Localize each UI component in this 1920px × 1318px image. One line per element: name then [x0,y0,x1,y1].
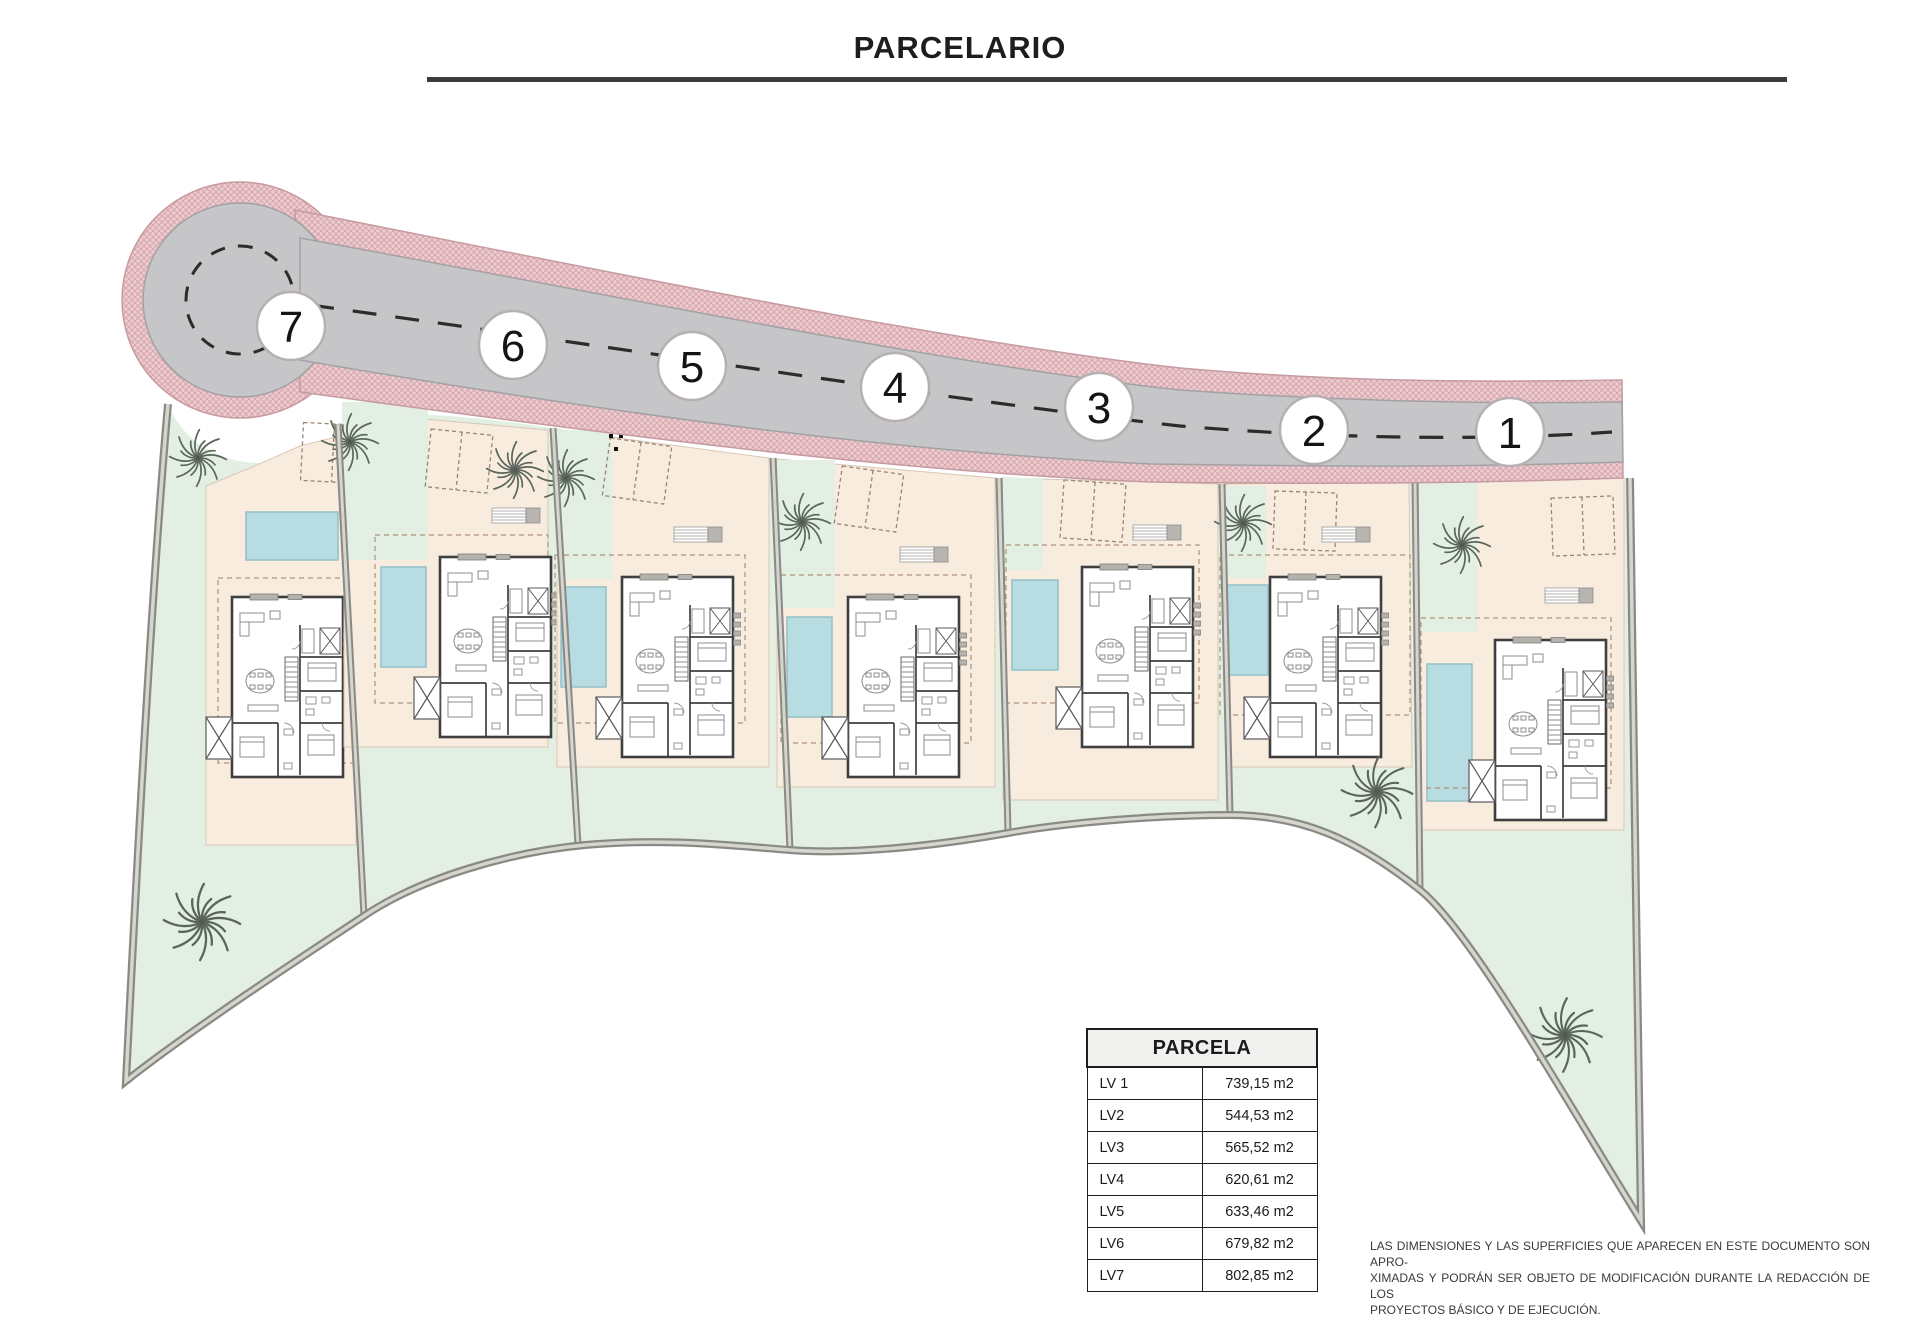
disclaimer-line: XIMADAS Y PODRÁN SER OBJETO DE MODIFICAC… [1370,1270,1870,1302]
disclaimer-line: PROYECTOS BÁSICO Y DE EJECUCIÓN. [1370,1302,1870,1318]
parcel-3 [1003,478,1218,800]
parcel-area: 620,61 m2 [1202,1164,1317,1196]
parcel-label: LV7 [1087,1260,1202,1292]
parcel-label: LV 1 [1087,1067,1202,1100]
parcel-marker-label: 5 [680,343,704,392]
garden-steps [674,527,722,542]
parcela-table: PARCELA LV 1739,15 m2LV2544,53 m2LV3565,… [1086,1028,1318,1292]
table-header: PARCELA [1087,1029,1317,1067]
parcel-marker-label: 4 [883,364,907,413]
table-row: LV4620,61 m2 [1087,1164,1317,1196]
pool [1224,585,1268,675]
parcel-marker-label: 3 [1087,384,1111,433]
pool [246,512,338,560]
page-title: PARCELARIO [0,30,1920,66]
lawn-patch [556,430,612,579]
parcel-marker-1: 1 [1476,398,1544,466]
parcels-area [126,402,1641,1221]
lawn-patch [1003,478,1043,570]
parcel-area: 802,85 m2 [1202,1260,1317,1292]
parcel-label: LV5 [1087,1196,1202,1228]
parcel-label: LV2 [1087,1100,1202,1132]
garden-steps [1545,588,1593,603]
page: { "title": "PARCELARIO", "plan": { "road… [0,0,1920,1280]
parcel-label: LV6 [1087,1228,1202,1260]
parcel-marker-5: 5 [658,332,726,400]
table-row: LV3565,52 m2 [1087,1132,1317,1164]
table-row: LV6679,82 m2 [1087,1228,1317,1260]
garden-steps [492,508,540,523]
pool [787,617,832,717]
pool [1427,664,1472,801]
parcel-marker-label: 1 [1498,409,1522,458]
parcel-label: LV3 [1087,1132,1202,1164]
parcel-label: LV4 [1087,1164,1202,1196]
parcel-marker-4: 4 [861,353,929,421]
parcel-marker-6: 6 [479,311,547,379]
pool [381,567,426,667]
garden-steps [1133,525,1181,540]
garden-steps [900,547,948,562]
parcel-marker-label: 6 [501,322,525,371]
table-row: LV2544,53 m2 [1087,1100,1317,1132]
parcel-marker-label: 7 [279,303,303,352]
pool [1012,580,1058,670]
disclaimer: LAS DIMENSIONES Y LAS SUPERFICIES QUE AP… [1370,1238,1870,1318]
parcel-area: 633,46 m2 [1202,1196,1317,1228]
title-underline [427,77,1787,82]
parcel-area: 565,52 m2 [1202,1132,1317,1164]
parcel-marker-7: 7 [257,292,325,360]
garden-steps [1322,527,1370,542]
table-row: LV7802,85 m2 [1087,1260,1317,1292]
table-row: LV5633,46 m2 [1087,1196,1317,1228]
lawn-patch [777,460,835,608]
parcel-4 [774,459,995,787]
parcel-area: 679,82 m2 [1202,1228,1317,1260]
parcel-marker-2: 2 [1280,396,1348,464]
parcel-area: 544,53 m2 [1202,1100,1317,1132]
lawn-patch [1224,486,1266,578]
parcel-marker-label: 2 [1302,407,1326,456]
disclaimer-line: LAS DIMENSIONES Y LAS SUPERFICIES QUE AP… [1370,1238,1870,1270]
parcel-area: 739,15 m2 [1202,1067,1317,1100]
parcel-marker-3: 3 [1065,373,1133,441]
table-row: LV 1739,15 m2 [1087,1067,1317,1100]
site-plan: 7654321 [0,0,1920,1280]
parcel-6 [322,402,559,747]
